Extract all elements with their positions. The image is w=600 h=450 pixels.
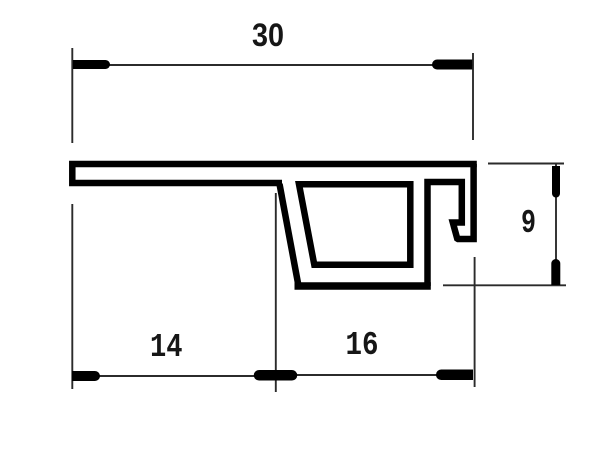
- svg-text:30: 30: [252, 17, 284, 53]
- svg-text:9: 9: [521, 205, 536, 243]
- svg-text:14: 14: [150, 329, 183, 367]
- svg-text:16: 16: [346, 327, 379, 365]
